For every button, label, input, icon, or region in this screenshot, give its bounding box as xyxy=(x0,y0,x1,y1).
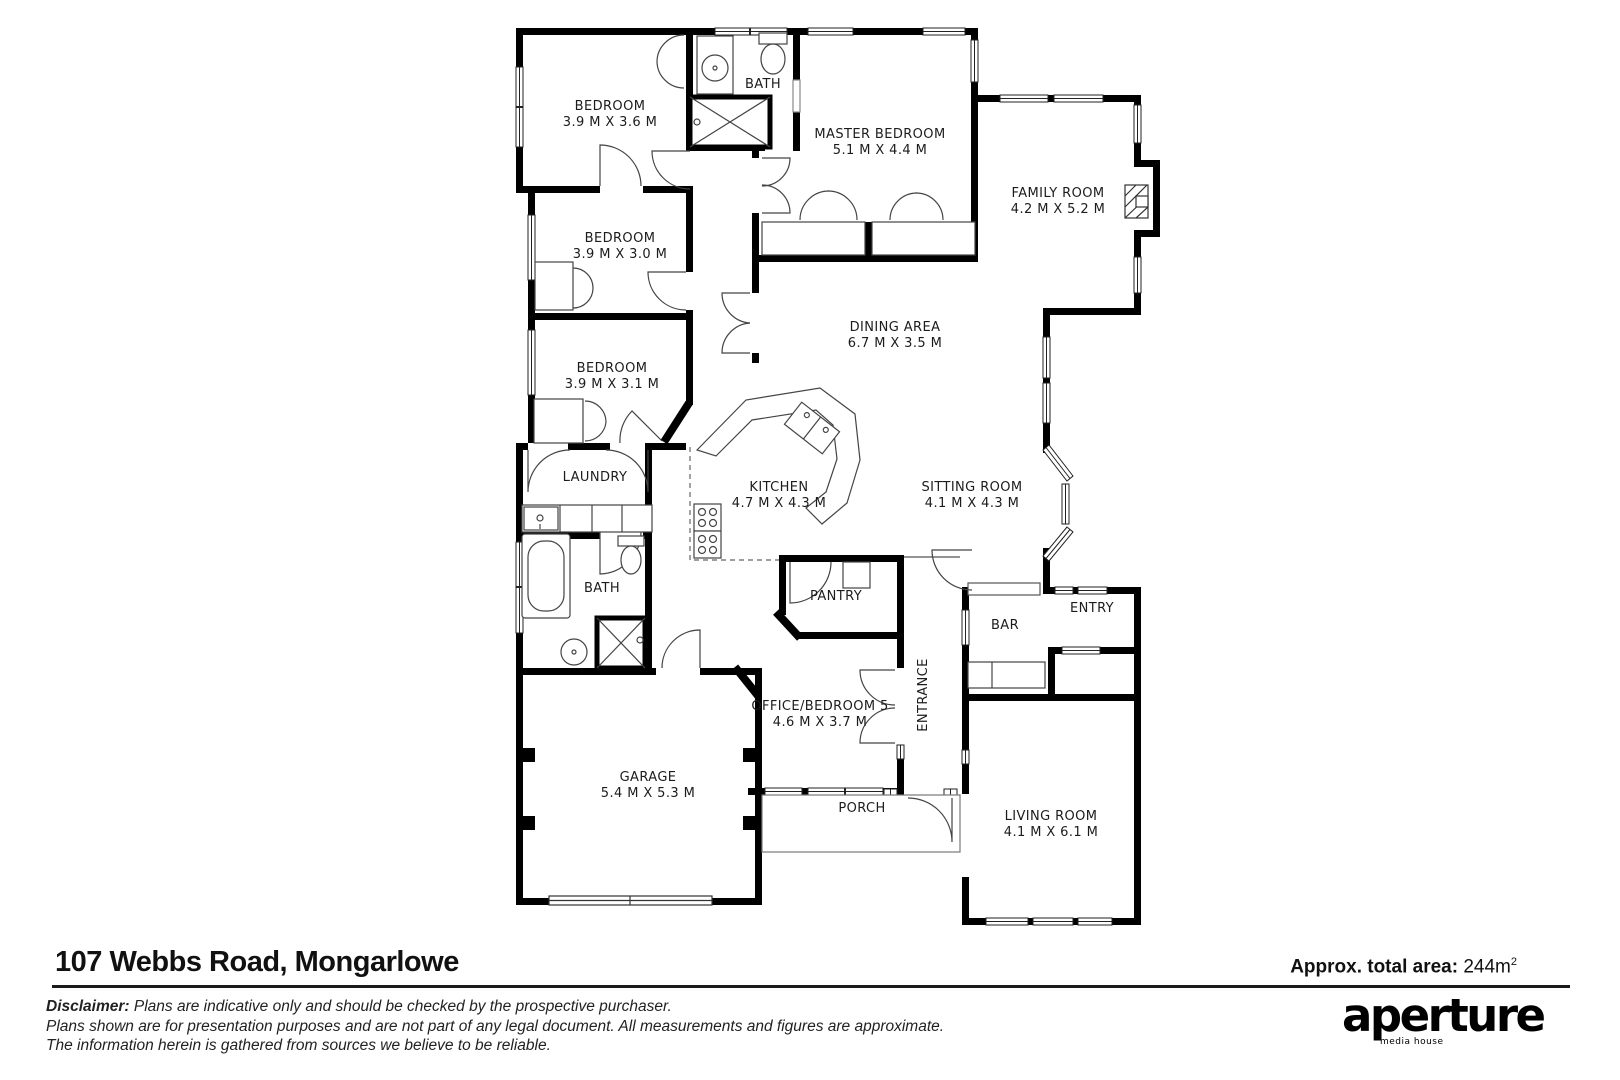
total-area-sup: 2 xyxy=(1511,956,1517,968)
wardrobe-arc-3 xyxy=(890,193,917,220)
closet-bifold-bedroom1 xyxy=(657,35,684,88)
door-bedroom2 xyxy=(648,272,686,310)
room-label-sitting: SITTING ROOM4.1 M X 4.3 M xyxy=(921,480,1022,511)
disclaimer-text: Disclaimer: Plans are indicative only an… xyxy=(46,997,944,1056)
toilet-tank-top xyxy=(759,33,787,44)
wardrobe-arc-1 xyxy=(800,191,829,220)
closet-bifold-bedroom2 xyxy=(573,268,593,308)
room-label-bedroom1: BEDROOM3.9 M X 3.6 M xyxy=(563,99,657,130)
door-entrance-top xyxy=(932,550,972,590)
pantry-shelf xyxy=(843,562,870,588)
room-label-garage: GARAGE5.4 M X 5.3 M xyxy=(601,770,695,801)
room-label-entrance: ENTRANCE xyxy=(916,658,931,732)
address-title: 107 Webbs Road, Mongarlowe xyxy=(55,946,459,979)
bathtub-inner xyxy=(528,541,564,611)
room-label-pantry: PANTRY xyxy=(810,589,862,604)
room-label-porch: PORCH xyxy=(838,801,885,816)
total-area-label: Approx. total area: xyxy=(1290,956,1458,977)
floor-plan-drawing: BEDROOM3.9 M X 3.6 M BATH MASTER BEDROOM… xyxy=(0,0,1620,940)
stove-2 xyxy=(694,531,721,558)
room-label-master: MASTER BEDROOM5.1 M X 4.4 M xyxy=(814,127,945,158)
shower-head-lower xyxy=(637,637,643,643)
room-label-bedroom2: BEDROOM3.9 M X 3.0 M xyxy=(573,231,667,262)
door-bedroom1 xyxy=(600,145,641,186)
door-master-a xyxy=(762,158,790,186)
aperture-logo: aperture media house xyxy=(1342,995,1562,1047)
wardrobe-1 xyxy=(762,222,865,255)
wardrobe-arc-2 xyxy=(828,191,857,220)
room-label-bath-top: BATH xyxy=(745,77,781,92)
closet-bedroom3 xyxy=(534,399,583,443)
wardrobe-arc-4 xyxy=(916,193,943,220)
closet-bifold-bedroom3 xyxy=(585,401,606,441)
toilet-tank-lower xyxy=(618,536,644,546)
door-garage-hall xyxy=(662,630,700,668)
master-pocket-door xyxy=(793,80,800,112)
room-label-bar: BAR xyxy=(991,618,1019,633)
total-area-value: 244m xyxy=(1463,956,1511,977)
door-bath-top xyxy=(652,151,690,189)
toilet-bowl-top xyxy=(761,44,785,74)
door-master-b xyxy=(762,185,790,213)
disclaimer-label: Disclaimer: xyxy=(46,998,130,1015)
bar-opening xyxy=(968,583,1040,595)
fireplace xyxy=(1125,185,1148,218)
room-label-entry: ENTRY xyxy=(1070,601,1114,616)
room-label-dining: DINING AREA6.7 M X 3.5 M xyxy=(848,320,942,351)
logo-wordmark: aperture xyxy=(1342,995,1562,1037)
room-label-living: LIVING ROOM4.1 M X 6.1 M xyxy=(1004,809,1098,840)
room-label-office: OFFICE/BEDROOM 54.6 M X 3.7 M xyxy=(751,699,888,730)
toilet-bowl-lower xyxy=(621,546,641,574)
stove-1 xyxy=(694,504,721,531)
room-label-bath-lower: BATH xyxy=(584,581,620,596)
total-area: Approx. total area: 244m2 xyxy=(1290,956,1517,978)
room-label-kitchen: KITCHEN4.7 M X 4.3 M xyxy=(732,480,826,511)
divider-rule xyxy=(52,985,1570,988)
shower-head-top xyxy=(694,119,700,125)
door-bedroom3 xyxy=(620,411,662,443)
door-hall-b xyxy=(722,323,750,353)
door-hall-a xyxy=(722,293,750,323)
wardrobe-2 xyxy=(872,222,975,255)
closet-bedroom2 xyxy=(535,262,573,310)
room-label-bedroom3: BEDROOM3.9 M X 3.1 M xyxy=(565,361,659,392)
bar-counter xyxy=(968,662,1045,688)
room-label-family: FAMILY ROOM4.2 M X 5.2 M xyxy=(1011,186,1105,217)
floor-plan-page: BEDROOM3.9 M X 3.6 M BATH MASTER BEDROOM… xyxy=(0,0,1620,1080)
room-label-laundry: LAUNDRY xyxy=(563,470,628,485)
